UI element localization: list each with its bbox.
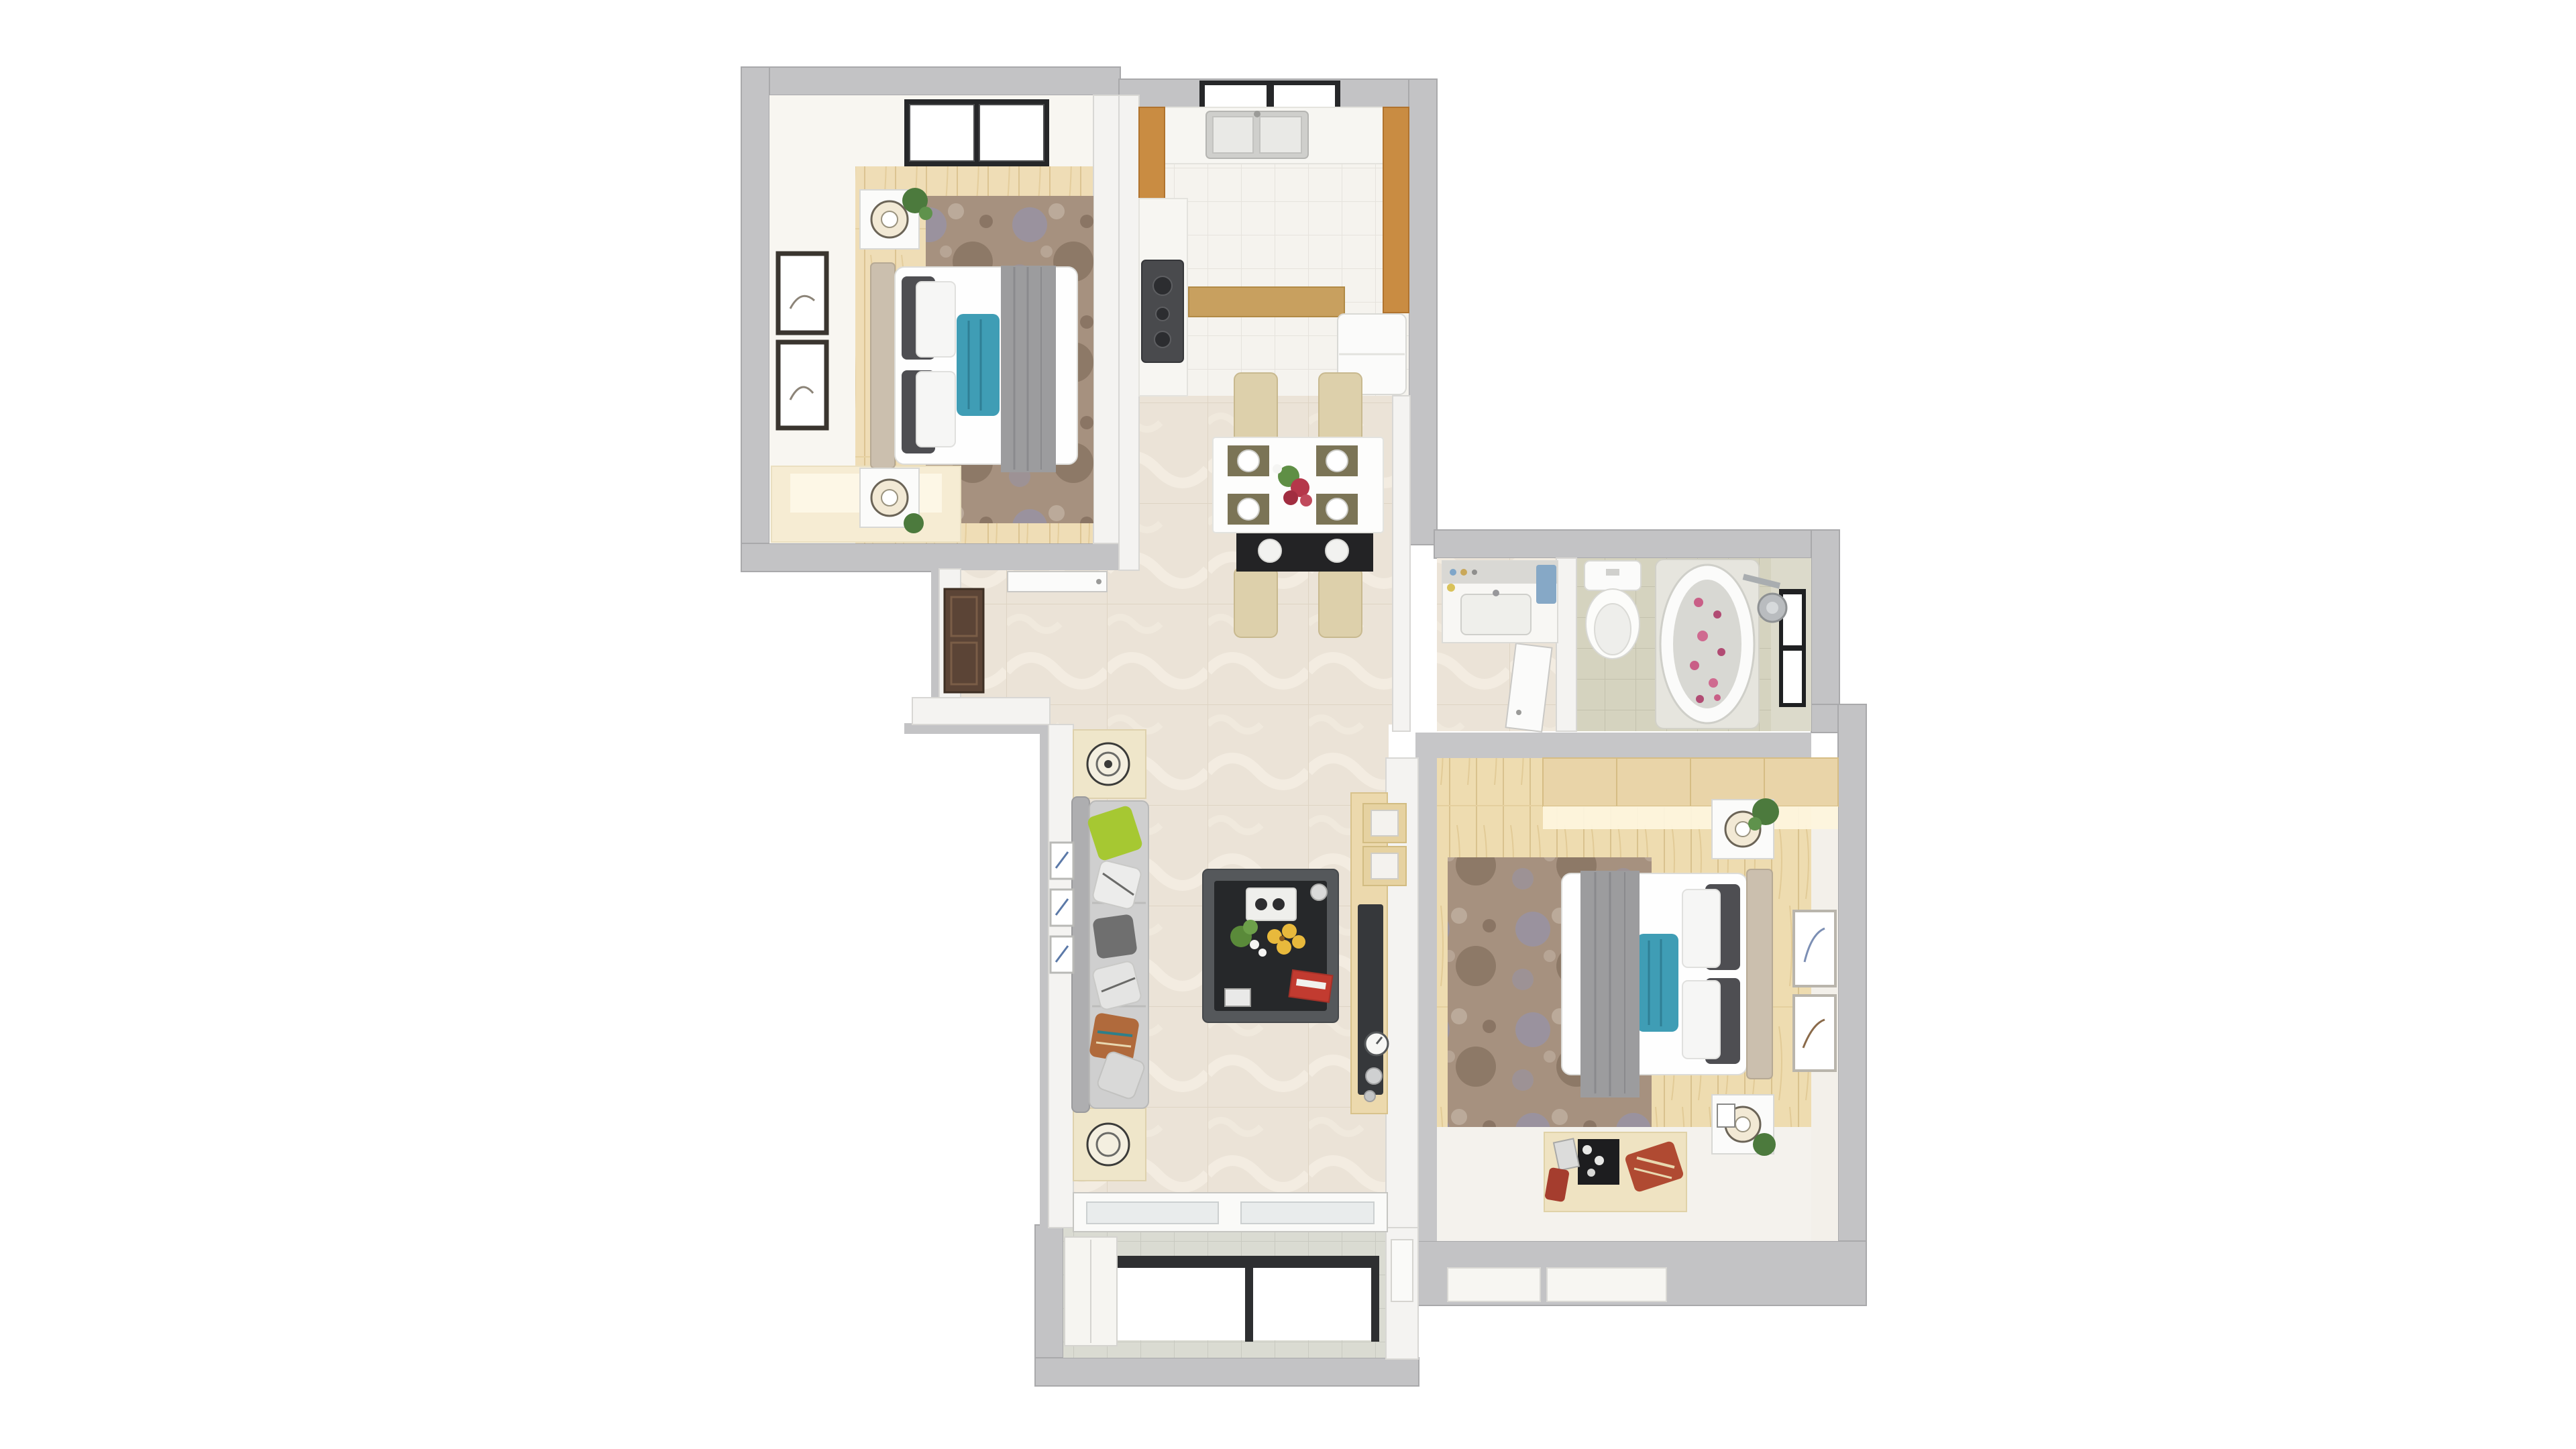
- petal-b: [1713, 610, 1721, 619]
- balcony-window-stile-b: [1245, 1256, 1253, 1342]
- cooktop-burner-c: [1155, 331, 1171, 347]
- wardrobe-glow: [1543, 806, 1838, 829]
- plant-master-bottom: [1753, 1133, 1776, 1156]
- niche-master-b: [1547, 1268, 1666, 1301]
- plant-master-top-b: [1748, 817, 1762, 830]
- dining-chair-bottom-left: [1234, 568, 1277, 637]
- living-vase-b: [1364, 1091, 1375, 1102]
- floor-plan-page: [0, 0, 2576, 1449]
- door-bed2-open: [1008, 572, 1107, 592]
- wall-master-top: [1415, 733, 1811, 759]
- nook-book-dot-a: [1582, 1145, 1592, 1155]
- centerpiece-red-c: [1300, 494, 1312, 506]
- picture-frame-master-a: [1794, 911, 1835, 986]
- niche-master-a: [1448, 1268, 1540, 1301]
- bed2-headboard: [871, 263, 895, 468]
- window-kitchen-pane-left: [1205, 85, 1267, 108]
- tv-shelf-books-a: [1371, 810, 1398, 836]
- petal-f: [1709, 678, 1718, 688]
- wall-vanity-bath: [1556, 558, 1576, 731]
- centerpiece-white: [1273, 464, 1282, 474]
- balcony-window-frame-top: [1108, 1256, 1379, 1268]
- petal-e: [1690, 661, 1699, 670]
- tv-shelf-books-b: [1371, 853, 1398, 879]
- wall-bed2-top: [741, 67, 1120, 95]
- kitchen-faucet: [1254, 111, 1260, 117]
- bed2-pillow-white-a: [916, 282, 955, 357]
- sunflower-d: [1292, 935, 1305, 949]
- pillow-sofa-stripe-a: [1091, 859, 1142, 910]
- wall-kitchen-left: [1119, 95, 1139, 570]
- slidingdoor-pane-a: [1087, 1202, 1218, 1224]
- wall-master-right: [1838, 704, 1866, 1269]
- wall-bed2-bottom: [741, 543, 1120, 572]
- lamp-living-bottom: [1087, 1124, 1129, 1165]
- sunflower-center: [1279, 936, 1285, 941]
- vanity-toiletry-c: [1472, 570, 1477, 575]
- slidingdoor-pane-b: [1241, 1202, 1374, 1224]
- sunflower-c: [1277, 940, 1291, 955]
- vanity-towel: [1536, 565, 1556, 604]
- cooktop-burner-a: [1153, 276, 1172, 295]
- picture-frame-master-b: [1794, 996, 1835, 1071]
- living-vase-a: [1366, 1068, 1382, 1084]
- wall-bed2-right: [1093, 95, 1119, 543]
- plate-top-left: [1238, 450, 1259, 472]
- coffee-photo: [1225, 989, 1250, 1006]
- toilet-seat: [1595, 604, 1631, 655]
- picture-frame-bed2-b: [778, 342, 826, 428]
- sunflower-b: [1282, 924, 1297, 938]
- master-pillow-white-a: [1682, 890, 1720, 967]
- kitchen-sink-basin-b: [1260, 117, 1301, 153]
- dining-side-table: [1236, 530, 1373, 572]
- vanity-soap: [1447, 584, 1455, 592]
- centerpiece-red-b: [1283, 490, 1298, 505]
- kitchen-base-cabinet: [1189, 287, 1344, 317]
- dining-chair-top-right: [1319, 373, 1362, 443]
- petal-a: [1694, 598, 1703, 607]
- lamp-bed2-top-inner: [881, 211, 898, 227]
- lamp-bed2-bottom-inner: [881, 490, 898, 506]
- petal-g: [1696, 695, 1704, 703]
- sofa-back: [1072, 797, 1089, 1112]
- door-bed2-handle: [1096, 579, 1102, 584]
- wall-bed2-left: [741, 67, 769, 572]
- toilet-button: [1606, 569, 1619, 576]
- lamp-master-top-inner: [1735, 822, 1750, 837]
- vanity-faucet: [1493, 590, 1499, 596]
- tub-water: [1673, 580, 1741, 708]
- picture-frame-bed2-a: [778, 254, 826, 333]
- floor-plan-svg: [0, 0, 2576, 1449]
- wall-entry-bottom: [912, 698, 1050, 724]
- vanity-toiletry-a: [1450, 569, 1456, 576]
- coffee-tray-item-a: [1255, 898, 1267, 910]
- balcony-niche: [1391, 1240, 1413, 1301]
- coffee-leaves-b: [1243, 920, 1258, 934]
- vanity-toiletry-b: [1460, 569, 1467, 576]
- plate-top-right: [1326, 450, 1348, 472]
- master-pillow-white-b: [1682, 981, 1720, 1059]
- wall-bath-top: [1434, 530, 1839, 558]
- window-bath-pane-b: [1783, 651, 1802, 703]
- window-kitchen-pane-right: [1274, 85, 1335, 108]
- frame-master-nightstand: [1717, 1104, 1735, 1127]
- kitchen-cabinet-right: [1383, 107, 1409, 313]
- kitchen-sink-basin-a: [1213, 117, 1253, 153]
- bed2-pillow-white-b: [916, 372, 955, 447]
- pillow-sofa-dark: [1092, 914, 1138, 959]
- balcony-glass-a: [1116, 1267, 1246, 1340]
- bed2-pillow-teal: [957, 314, 1000, 416]
- plate-bottom-left: [1238, 498, 1259, 520]
- petal-h: [1714, 694, 1721, 701]
- balcony-glass-b: [1253, 1267, 1373, 1340]
- nook-book-dot-b: [1595, 1156, 1604, 1165]
- petal-c: [1697, 631, 1708, 641]
- shower-head-inner: [1766, 602, 1778, 614]
- petal-d: [1717, 648, 1725, 656]
- nook-book-dot-c: [1587, 1169, 1595, 1177]
- plate-bottom-right: [1326, 498, 1348, 520]
- tv-panel: [1358, 904, 1383, 1095]
- wall-living-left-edge: [1040, 723, 1049, 1228]
- plant-bed2-bottom: [904, 513, 924, 533]
- wall-dining-vanity: [1393, 396, 1410, 731]
- wall-living-master-core: [1418, 758, 1437, 1241]
- plant-bed2-top-b: [919, 207, 932, 220]
- dining-chair-bottom-right: [1319, 568, 1362, 637]
- wall-kitchen-right: [1409, 79, 1437, 545]
- balcony-window-stile-c: [1371, 1256, 1379, 1342]
- door-master-handle: [1516, 710, 1521, 715]
- master-bed-headboard: [1747, 869, 1772, 1079]
- lamp-master-bottom-inner: [1735, 1117, 1750, 1132]
- coffee-deco: [1311, 884, 1327, 900]
- dining-side-plate-b: [1326, 539, 1348, 562]
- wall-balcony-bottom: [1035, 1358, 1419, 1386]
- skylight-bed2-pane-left: [910, 105, 974, 161]
- white-flower-b: [1258, 949, 1267, 957]
- vanity-basin: [1461, 594, 1531, 635]
- wall-bath-right: [1811, 530, 1839, 733]
- coffee-tray-item-b: [1273, 898, 1285, 910]
- cooktop-burner-b: [1156, 307, 1169, 321]
- coffee-tray: [1246, 888, 1296, 920]
- skylight-bed2-pane-right: [979, 105, 1044, 161]
- master-pillow-teal: [1637, 934, 1678, 1032]
- wall-living-left: [1049, 724, 1073, 1228]
- dining-side-plate-a: [1258, 539, 1281, 562]
- lamp-living-top-dot: [1104, 760, 1112, 768]
- white-flower-a: [1250, 940, 1259, 949]
- dining-chair-top-left: [1234, 373, 1277, 443]
